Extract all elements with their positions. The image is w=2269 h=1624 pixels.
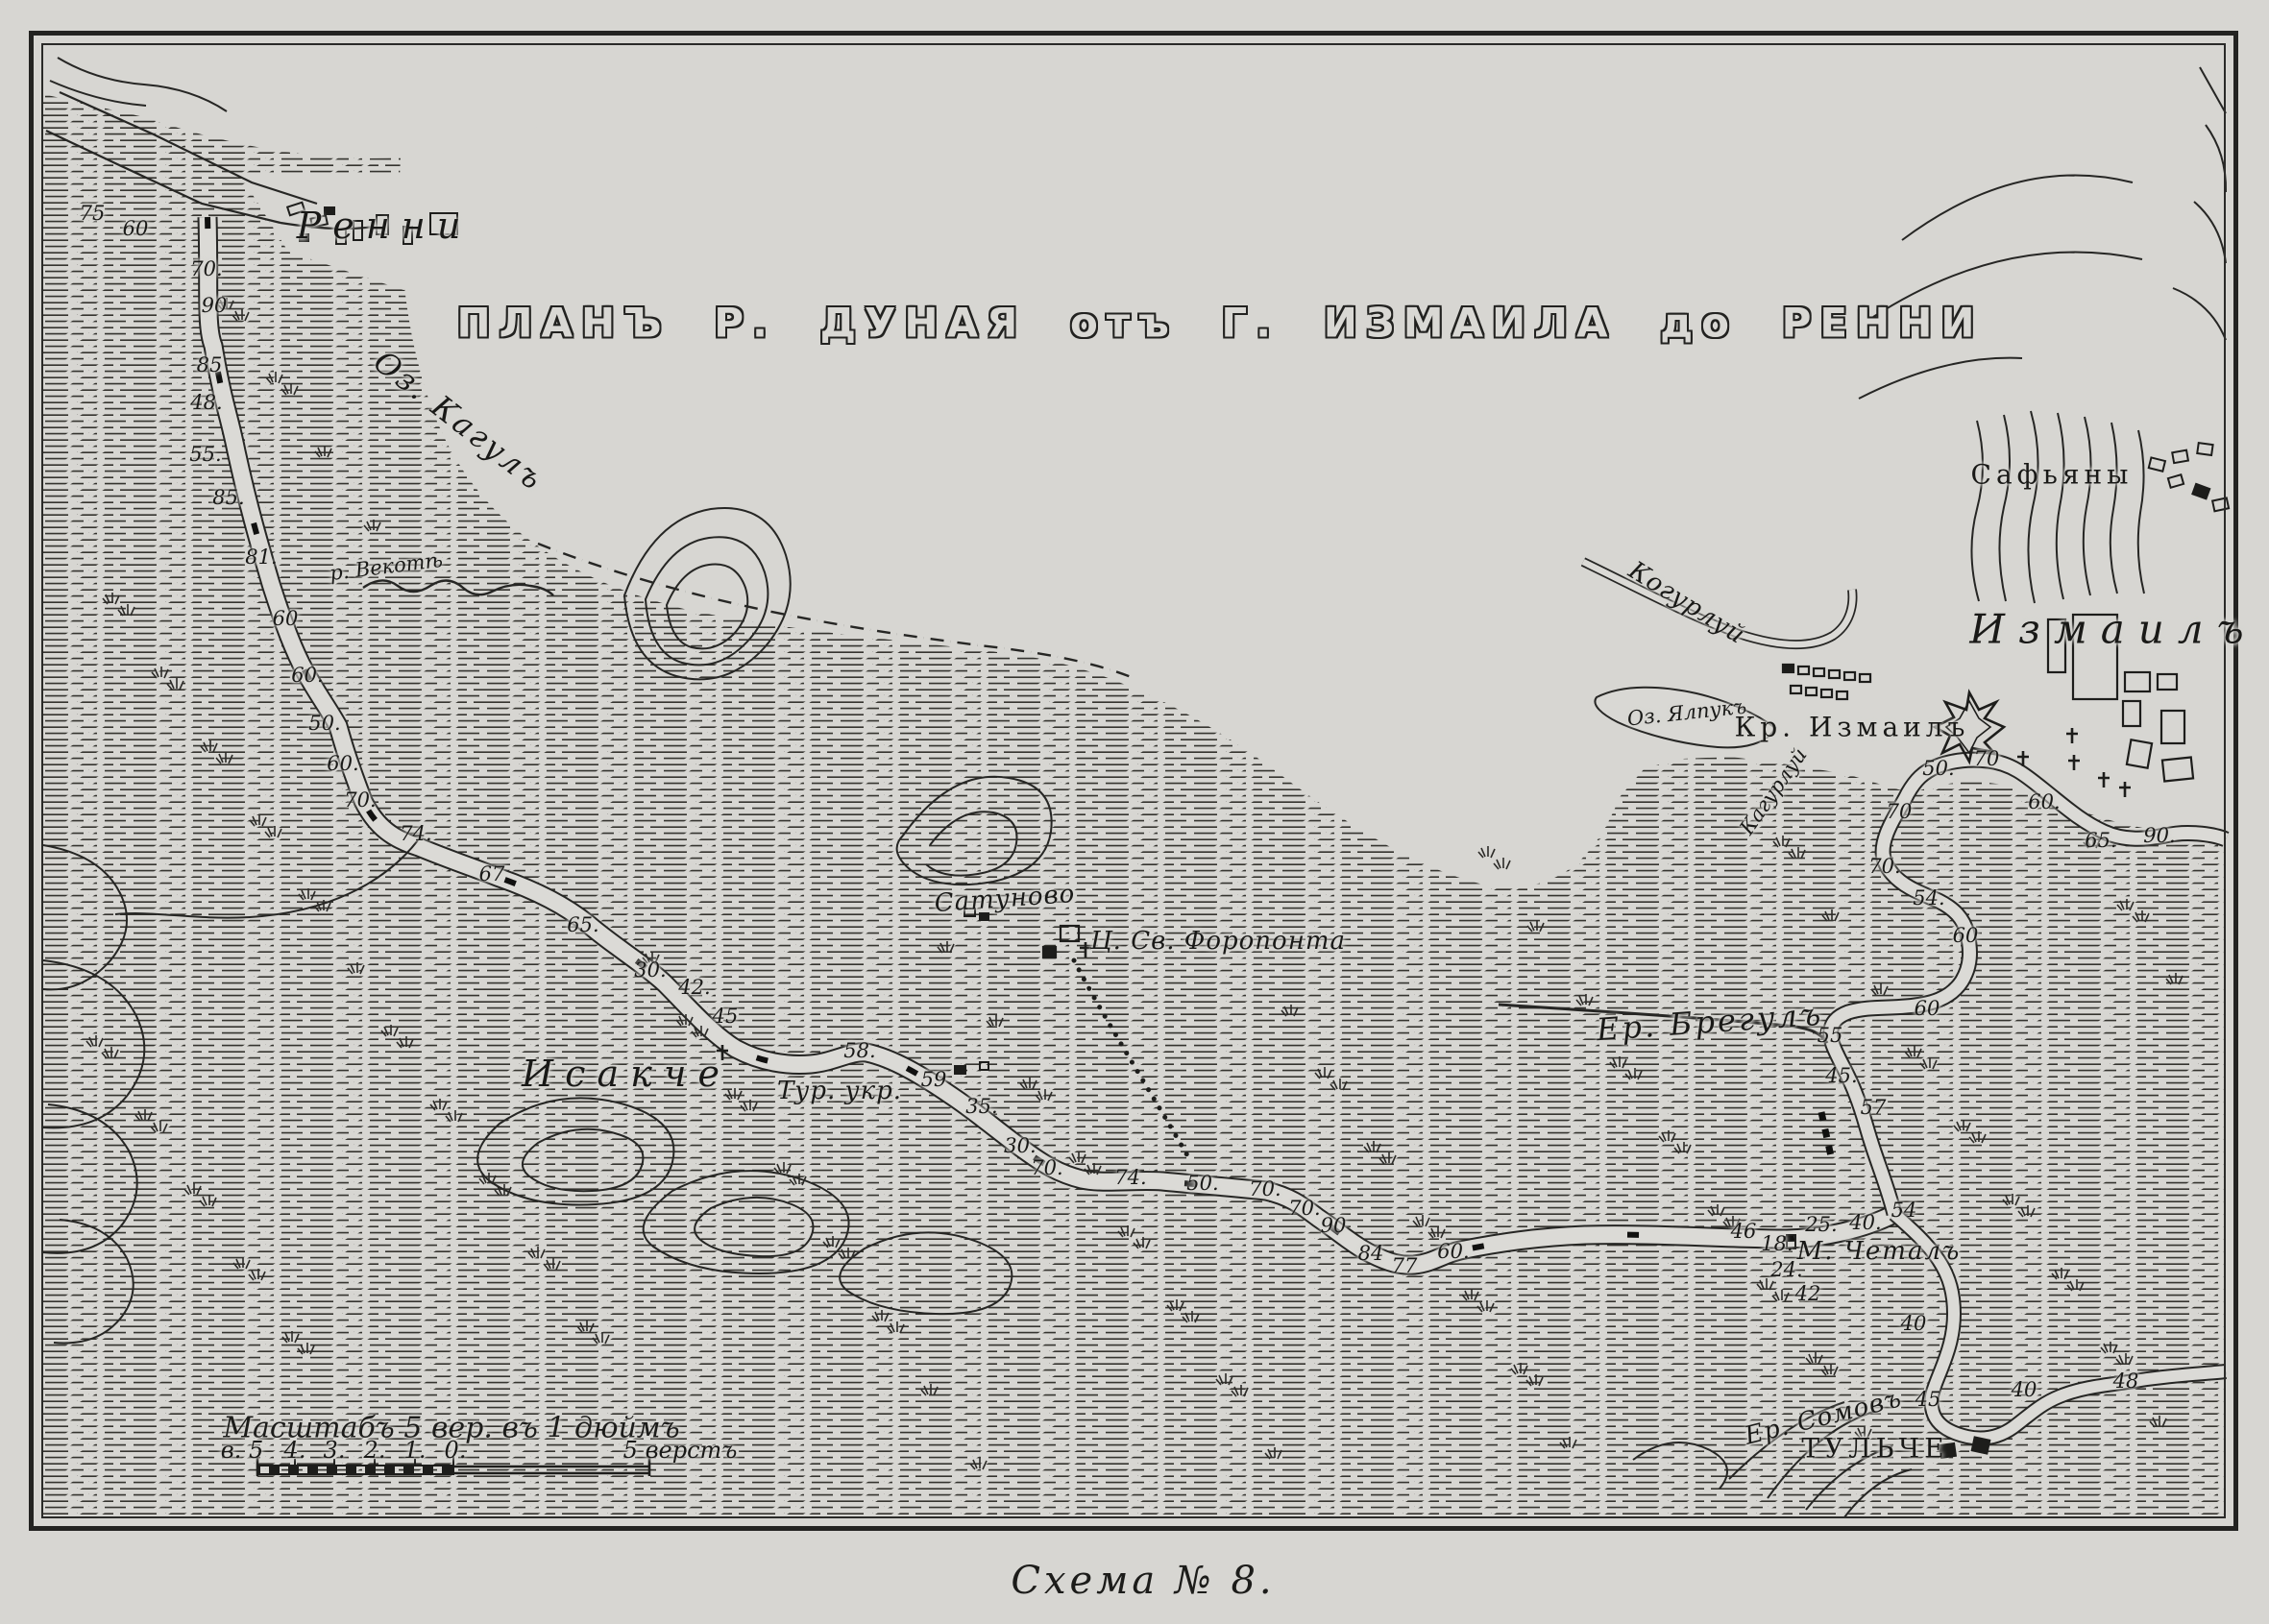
page: { "page": { "caption": "Схема № 8." }, "…	[0, 0, 2269, 1624]
figure-caption: Схема № 8.	[1011, 1559, 1275, 1603]
map-frame-inner	[41, 43, 2226, 1518]
scale-label: Масштабъ 5 вер. въ 1 дюймъ	[223, 1412, 679, 1445]
map-title: ПЛАНЪ Р. ДУНАЯ отъ Г. ИЗМАИЛА до РЕННИ	[456, 300, 1983, 347]
map-frame	[29, 31, 2238, 1531]
